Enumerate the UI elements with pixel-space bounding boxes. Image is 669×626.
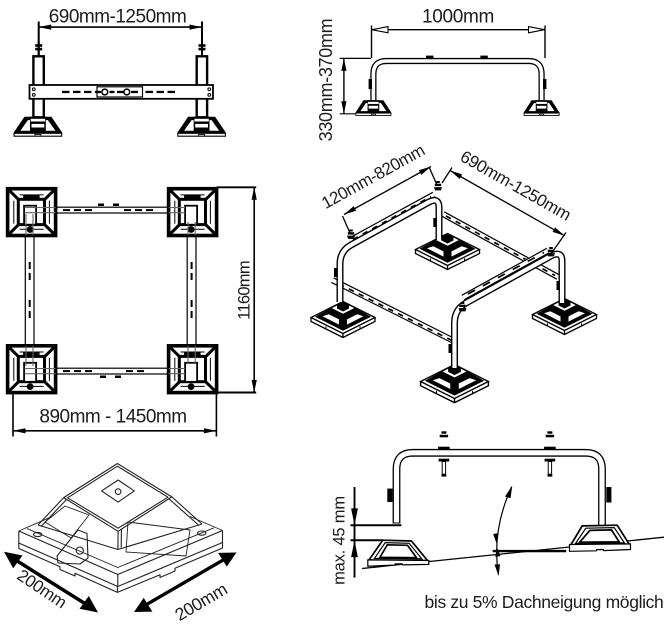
svg-text:690mm-1250mm: 690mm-1250mm <box>457 147 574 225</box>
svg-text:1000mm: 1000mm <box>422 7 494 28</box>
svg-text:bis zu 5% Dachneigung möglich: bis zu 5% Dachneigung möglich <box>425 592 664 612</box>
svg-text:1160mm: 1160mm <box>236 261 254 320</box>
svg-text:690mm-1250mm: 690mm-1250mm <box>49 7 187 28</box>
svg-text:890mm - 1450mm: 890mm - 1450mm <box>39 407 186 428</box>
svg-text:330mm-370mm: 330mm-370mm <box>316 19 336 142</box>
svg-text:max. 45 mm: max. 45 mm <box>331 496 349 585</box>
